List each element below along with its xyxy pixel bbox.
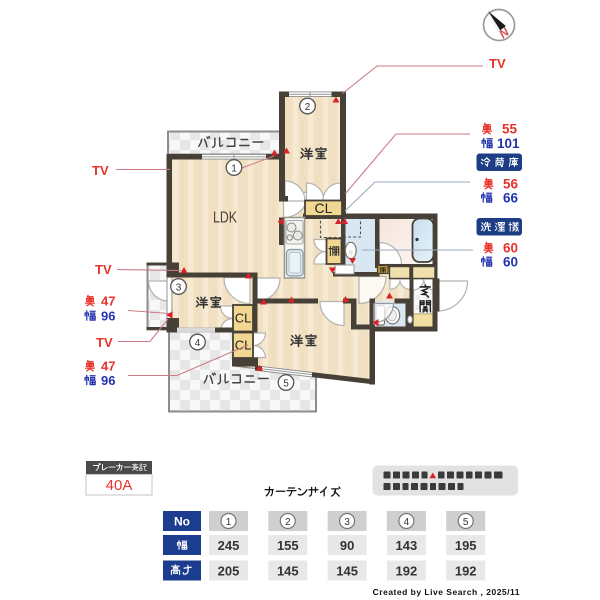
svg-text:No: No [174, 515, 190, 529]
svg-text:145: 145 [336, 563, 358, 578]
svg-text:101: 101 [497, 136, 520, 151]
svg-text:1: 1 [231, 163, 237, 174]
svg-text:4: 4 [195, 338, 201, 349]
svg-text:TV: TV [92, 163, 109, 178]
svg-text:143: 143 [396, 538, 418, 553]
svg-text:192: 192 [396, 563, 418, 578]
svg-text:47: 47 [101, 294, 115, 309]
svg-text:245: 245 [218, 538, 240, 553]
svg-text:195: 195 [455, 538, 477, 553]
svg-text:CL: CL [235, 311, 252, 326]
svg-text:55: 55 [502, 122, 518, 137]
svg-text:155: 155 [277, 538, 299, 553]
svg-text:5: 5 [463, 517, 469, 528]
svg-text:1: 1 [226, 517, 232, 528]
svg-text:60: 60 [503, 241, 518, 256]
svg-text:96: 96 [101, 309, 115, 324]
svg-text:TV: TV [95, 262, 112, 277]
svg-text:90: 90 [340, 538, 354, 553]
svg-text:TV: TV [489, 56, 506, 71]
svg-text:47: 47 [101, 359, 115, 374]
svg-text:60: 60 [503, 255, 518, 270]
svg-text:Created by Live Search , 2025/: Created by Live Search , 2025/11 [373, 587, 520, 597]
svg-text:40A: 40A [106, 477, 133, 494]
svg-text:LDK: LDK [213, 210, 237, 227]
svg-text:2: 2 [285, 517, 291, 528]
svg-text:66: 66 [503, 191, 519, 206]
svg-text:2: 2 [305, 102, 311, 113]
svg-text:CL: CL [315, 200, 333, 216]
svg-text:3: 3 [344, 517, 350, 528]
svg-text:CL: CL [235, 338, 252, 353]
svg-text:145: 145 [277, 563, 299, 578]
svg-text:205: 205 [218, 563, 240, 578]
svg-text:5: 5 [283, 378, 289, 389]
svg-text:3: 3 [176, 282, 182, 293]
svg-text:TV: TV [96, 335, 113, 350]
svg-text:96: 96 [101, 373, 115, 388]
svg-text:4: 4 [404, 517, 410, 528]
svg-text:192: 192 [455, 563, 477, 578]
svg-text:56: 56 [503, 177, 519, 192]
